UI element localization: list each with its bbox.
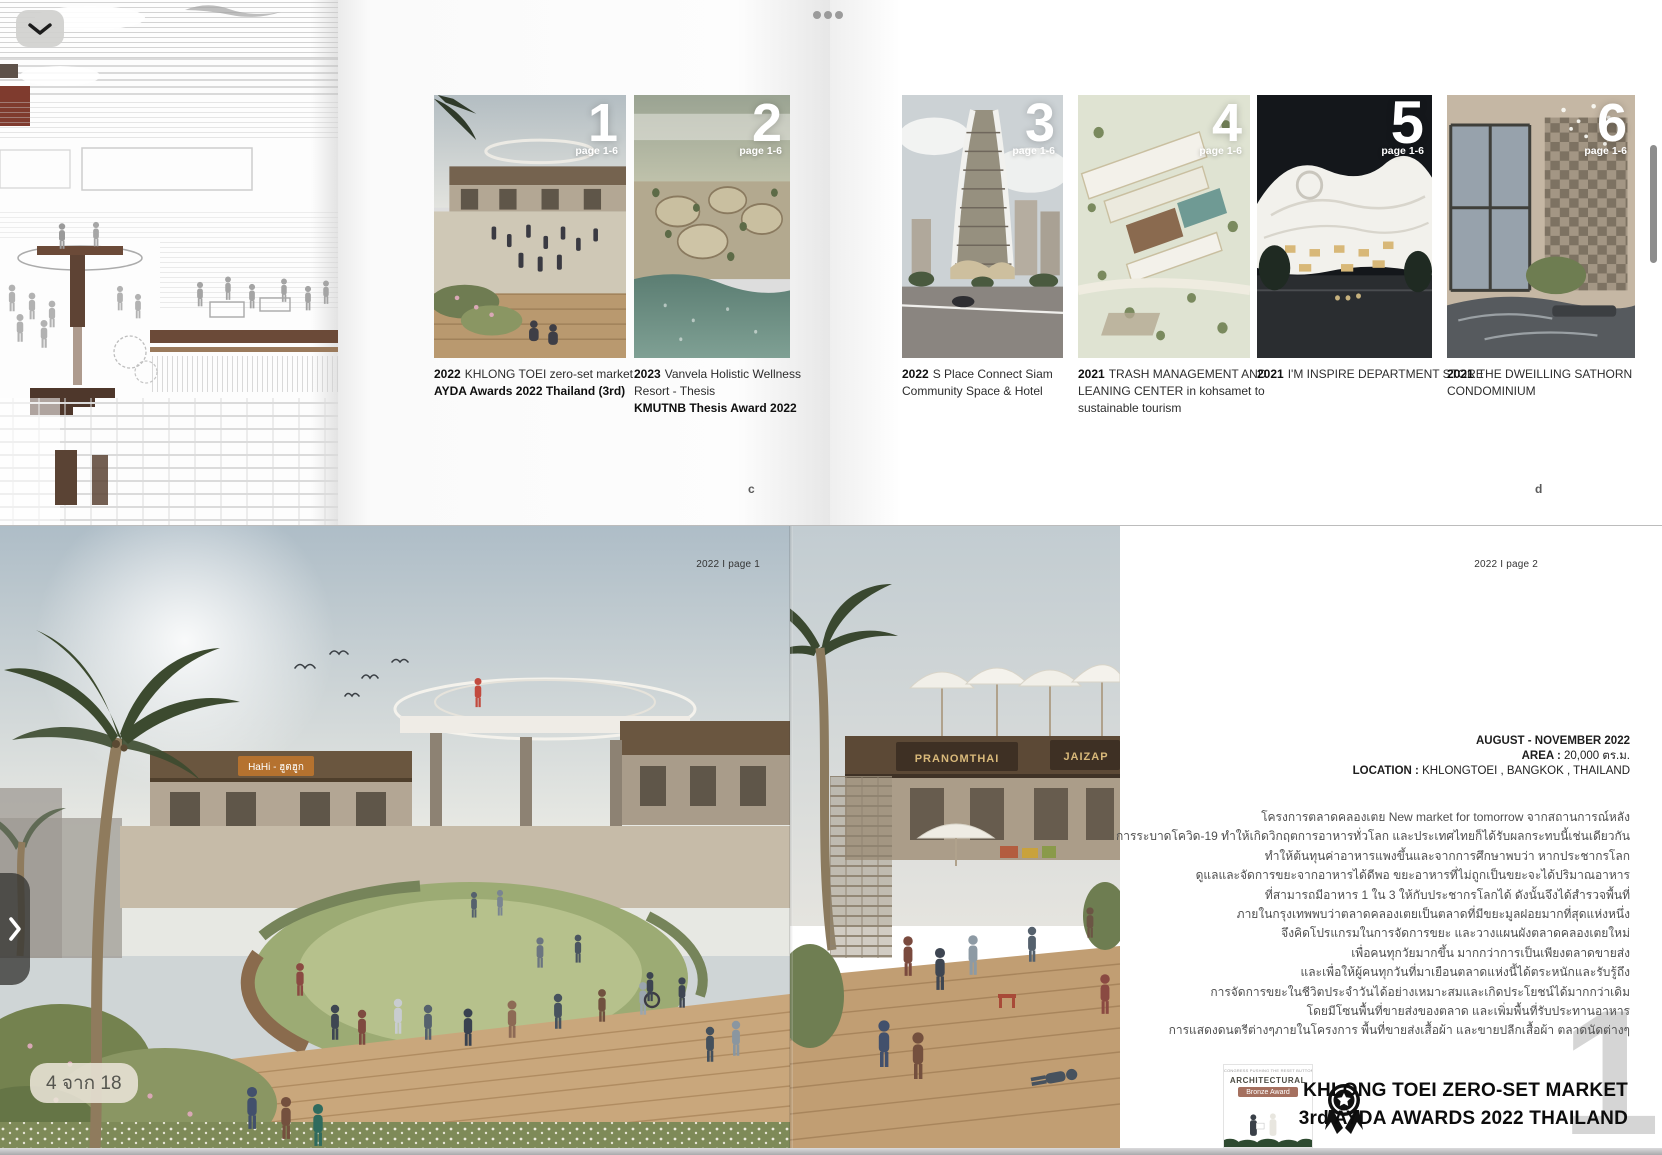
page-letter-c: c	[748, 482, 755, 496]
project-thumbnail-3: 3page 1-6	[902, 95, 1063, 358]
award-title-line2: 3rd AYDA AWARDS 2022 THAILAND	[1299, 1105, 1628, 1133]
award-title-line1: KHLONG TOEI ZERO-SET MARKET	[1299, 1077, 1628, 1105]
page-indicator-badge: 4 จาก 18	[30, 1063, 138, 1103]
caption-year: 2021	[1257, 367, 1284, 381]
caption-line: CONDOMINIUM	[1447, 383, 1632, 400]
thumbnail-5-art	[1257, 95, 1432, 358]
scrollbar-thumb[interactable]	[1650, 145, 1657, 263]
caption-line: Community Space & Hotel	[902, 383, 1053, 400]
thai-line: เพื่อคนทุกวัยมากขึ้น มากกว่าการเป็นเพียง…	[1116, 944, 1630, 963]
thai-line: การจัดการขยะในชีวิตประจำวันได้อย่างเหมาะ…	[1116, 983, 1630, 1002]
project-thumbnail-1: 1page 1-6	[434, 95, 626, 358]
caption-line: sustainable tourism	[1078, 400, 1267, 417]
spread-divider	[0, 525, 1662, 526]
award-title-block: KHLONG TOEI ZERO-SET MARKET 3rd AYDA AWA…	[1299, 1077, 1628, 1132]
page1-render-art: HaHi - ฮูตฮูก	[0, 526, 790, 1148]
caption-year: 2023	[634, 367, 661, 381]
chevron-down-icon	[27, 22, 53, 36]
detail-page-1: HaHi - ฮูตฮูก	[0, 526, 790, 1148]
thai-line: การแสดงดนตรีต่างๆภายในโครงการ พื้นที่ขาย…	[1116, 1021, 1630, 1040]
thai-line: โครงการตลาดคลองเตย New market for tomorr…	[1116, 808, 1630, 827]
chevron-right-icon	[8, 916, 22, 942]
caption-title: TRASH MANAGEMENT AND	[1109, 367, 1267, 381]
dot-icon	[813, 11, 821, 19]
thai-line: โดยมีโซนพื้นที่ขายส่งของตลาด และเพิ่มพื้…	[1116, 1002, 1630, 1021]
previous-page-drawing	[0, 0, 338, 525]
book-viewer: 1page 1-6 2page 1-6 2022KHLONG TOEI zero…	[0, 0, 1662, 1155]
area-label: AREA :	[1522, 750, 1561, 762]
index-page-right: 3page 1-6 4page 1-6	[830, 0, 1662, 525]
photo-bronze-award-badge: Bronze Award	[1238, 1087, 1298, 1097]
caption-year: 2021	[1447, 367, 1474, 381]
caption-year: 2022	[434, 367, 461, 381]
project-thumbnail-6: 6page 1-6	[1447, 95, 1635, 358]
thumbnail-4-art	[1078, 95, 1250, 358]
page-spine-seam	[789, 526, 793, 1148]
page-letter-d: d	[1535, 482, 1542, 496]
dot-icon	[835, 11, 843, 19]
page2-render-art: PRANOMTHAI JAIZAP	[790, 526, 1120, 1148]
caption-award: AYDA Awards 2022 Thailand (3rd)	[434, 383, 633, 400]
collapse-viewer-button[interactable]	[16, 10, 64, 47]
caption-year: 2022	[902, 367, 929, 381]
hahi-sign-text: HaHi - ฮูตฮูก	[248, 762, 304, 773]
caption-title: S Place Connect Siam	[933, 367, 1053, 381]
thai-line: จึงคิดโปรแกรมในการจัดการขยะ และวางแผนผัง…	[1116, 924, 1630, 943]
jaizap-sign-text: JAIZAP	[1063, 751, 1108, 763]
thai-line: และเพื่อให้ผู้คนทุกวันที่มาเยือนตลาดแห่ง…	[1116, 963, 1630, 982]
thumbnail-2-art	[634, 95, 790, 358]
caption-title: KHLONG TOEI zero-set market	[465, 367, 633, 381]
caption-title: THE DWEILLING SATHORN	[1478, 367, 1632, 381]
project-caption-2: 2023Vanvela Holistic Wellness Resort - T…	[634, 366, 801, 417]
project-thumbnail-4: 4page 1-6	[1078, 95, 1250, 358]
area-value: 20,000 ตร.ม.	[1564, 750, 1630, 762]
thumbnail-6-art	[1447, 95, 1635, 358]
thai-line: ดูแลและจัดการขยะจากอาหารได้ดีพอ ขยะอาหาร…	[1116, 866, 1630, 885]
project-dates: AUGUST - NOVEMBER 2022	[1353, 734, 1630, 749]
location-value: KHLONGTOEI , BANGKOK , THAILAND	[1422, 765, 1630, 777]
caption-award: KMUTNB Thesis Award 2022	[634, 400, 801, 417]
index-page-left: 1page 1-6 2page 1-6 2022KHLONG TOEI zero…	[338, 0, 830, 525]
detail-page-2: PRANOMTHAI JAIZAP	[790, 526, 1662, 1148]
pranomthai-sign-text: PRANOMTHAI	[915, 753, 1000, 765]
project-thumbnail-5: 5page 1-6	[1257, 95, 1432, 358]
caption-line: LEANING CENTER in kohsamet to	[1078, 383, 1267, 400]
more-options-button[interactable]	[813, 11, 843, 19]
project-caption-4: 2021TRASH MANAGEMENT AND LEANING CENTER …	[1078, 366, 1267, 417]
page2-label: 2022 I page 2	[1474, 559, 1538, 570]
thumbnail-1-art	[434, 95, 626, 358]
thai-line: ภายในกรุงเทพพบว่าตลาดคลองเตยเป็นตลาดที่ม…	[1116, 905, 1630, 924]
page-stack-edge	[0, 1148, 1662, 1155]
line-drawing-art	[0, 0, 338, 525]
caption-title: Vanvela Holistic Wellness	[665, 367, 801, 381]
caption-year: 2021	[1078, 367, 1105, 381]
thai-line: ที่สามารถมีอาหาร 1 ใน 3 ให้กับประชากรโลก…	[1116, 886, 1630, 905]
photo-header-text: CONGRESS PUSHING THE RESET BUTTON	[1224, 1068, 1312, 1073]
page1-label: 2022 I page 1	[696, 559, 760, 570]
next-page-tab[interactable]	[0, 873, 30, 985]
thai-line: ทำให้ต้นทุนค่าอาหารแพงขึ้นและจากการศึกษา…	[1116, 847, 1630, 866]
project-caption-6: 2021THE DWEILLING SATHORN CONDOMINIUM	[1447, 366, 1632, 400]
location-label: LOCATION :	[1353, 765, 1419, 777]
project-info-block: AUGUST - NOVEMBER 2022 AREA : 20,000 ตร.…	[1353, 734, 1630, 779]
project-description-thai: โครงการตลาดคลองเตย New market for tomorr…	[1116, 808, 1630, 1041]
dot-icon	[824, 11, 832, 19]
project-thumbnail-2: 2page 1-6	[634, 95, 790, 358]
project-caption-1: 2022KHLONG TOEI zero-set market AYDA Awa…	[434, 366, 633, 400]
project-caption-3: 2022S Place Connect Siam Community Space…	[902, 366, 1053, 400]
thai-line: การระบาดโควิด-19 ทำให้เกิดวิกฤตการอาหารท…	[1116, 827, 1630, 846]
thumbnail-3-art	[902, 95, 1063, 358]
caption-line: Resort - Thesis	[634, 383, 801, 400]
